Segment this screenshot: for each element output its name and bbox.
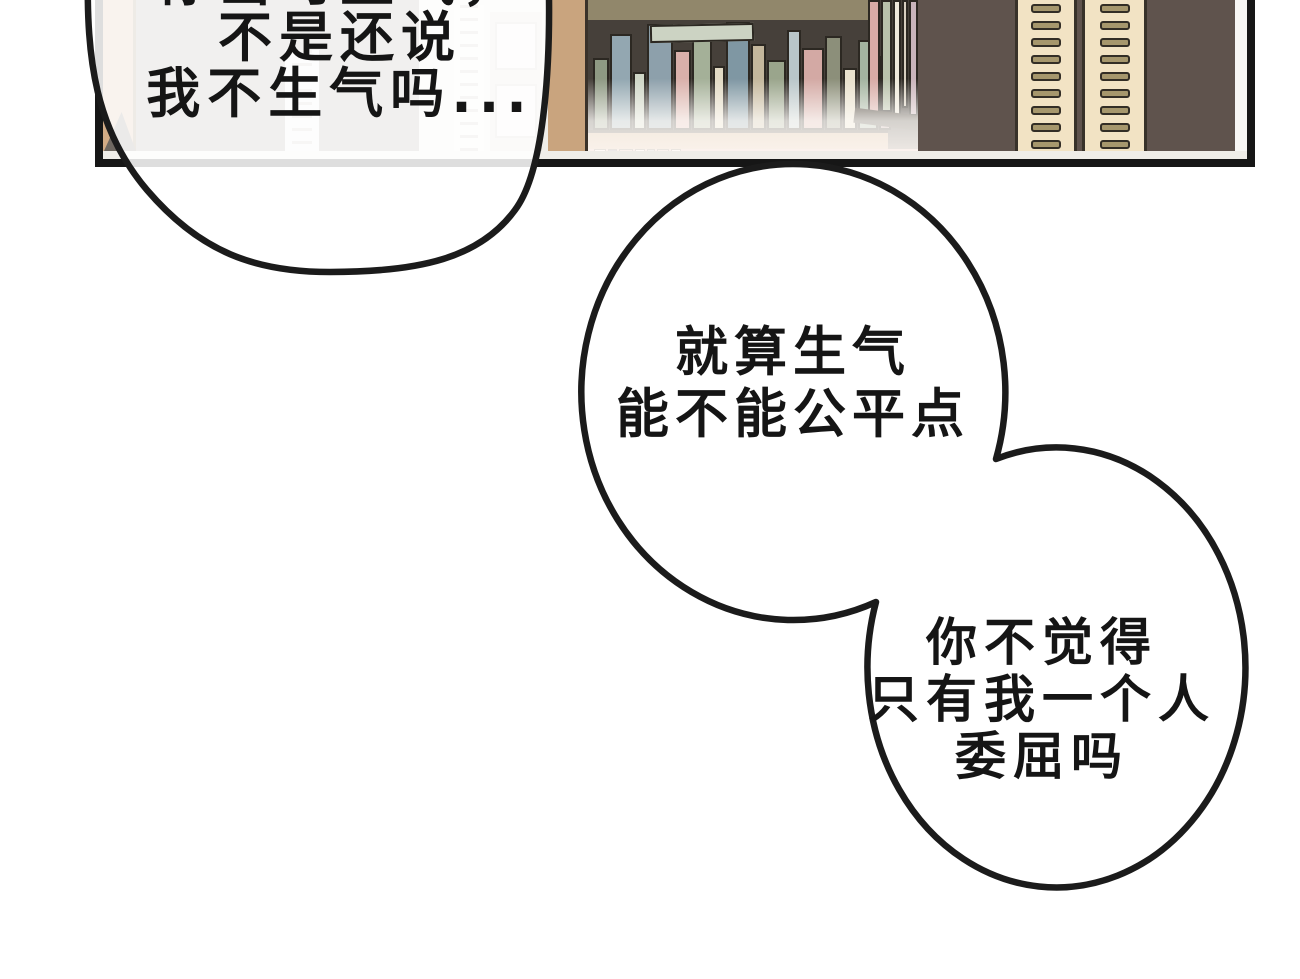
tower-vent-slot bbox=[1100, 38, 1130, 47]
tower-vent-slot bbox=[1031, 106, 1061, 115]
tower-vent-slot bbox=[1031, 89, 1061, 98]
bubble-line: 我不生气吗... bbox=[120, 66, 560, 122]
tower-vent-slot bbox=[1100, 55, 1130, 64]
comic-page: 你当时生气， 不是还说 我不生气吗... 就算生气 能不能公平点 你不觉得 只有… bbox=[0, 0, 1300, 979]
tower-vent-slot bbox=[1031, 21, 1061, 30]
tower-vent-slot bbox=[1100, 123, 1130, 132]
tower-vent-slot bbox=[1100, 72, 1130, 81]
bookshelf-interior bbox=[588, 0, 920, 151]
bubble-line: 不是还说 bbox=[120, 10, 560, 66]
tower-vent-slot bbox=[1031, 123, 1061, 132]
panel-edge-gap bbox=[1235, 0, 1247, 151]
tower-vent-slot bbox=[1100, 89, 1130, 98]
bubble-line: 能不能公平点 bbox=[573, 384, 1013, 446]
speech-bubble-middle-text: 就算生气 能不能公平点 bbox=[573, 322, 1013, 446]
tower-vent-slot bbox=[1100, 21, 1130, 30]
tower-vent-slot bbox=[1100, 4, 1130, 13]
tower-vent-slot bbox=[1100, 106, 1130, 115]
tower-vent-slot bbox=[1031, 72, 1061, 81]
bubble-line: 委屈吗 bbox=[852, 729, 1232, 786]
tower-vent-slot bbox=[1031, 4, 1061, 13]
tower-vent-slot bbox=[1031, 38, 1061, 47]
slotted-building-tower bbox=[1082, 0, 1147, 151]
speech-bubble-bottom-right-text: 你不觉得 只有我一个人 委屈吗 bbox=[852, 615, 1232, 786]
slotted-building-tower bbox=[1015, 0, 1077, 151]
speech-bubble-top-left-text: 你当时生气， 不是还说 我不生气吗... bbox=[120, 0, 560, 122]
tower-vent-slot bbox=[1031, 140, 1061, 149]
bubble-line: 就算生气 bbox=[573, 322, 1013, 384]
light-haze-overlay bbox=[588, 0, 920, 151]
bubble-line: 你不觉得 bbox=[852, 615, 1232, 672]
tower-vent-slot bbox=[1100, 140, 1130, 149]
bubble-line: 只有我一个人 bbox=[852, 672, 1232, 729]
tower-vent-slot bbox=[1031, 55, 1061, 64]
